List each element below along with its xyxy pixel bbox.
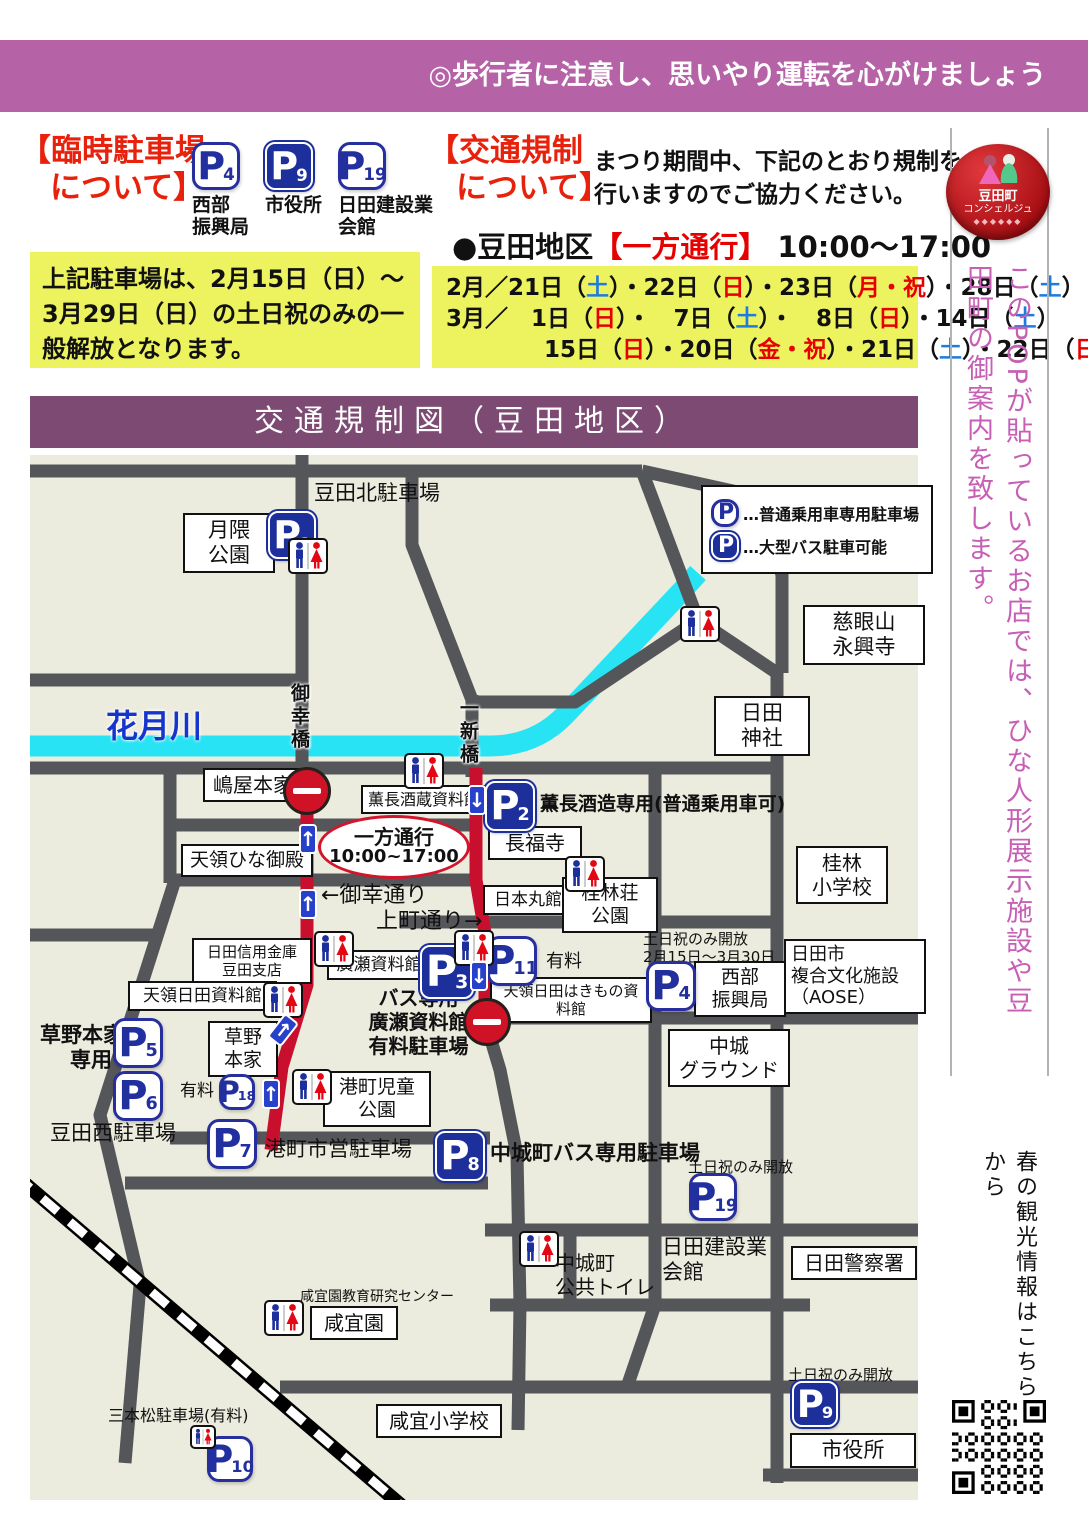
traffic-regulation-map: P…普通乗用車専用駐車場P…大型バス駐車可能 一方通行 10:00~17:00 … — [30, 455, 918, 1500]
map-label-nihonmarukan: 日本丸館 — [483, 885, 573, 915]
subtitle-segment: ●豆田地区 — [452, 230, 593, 264]
flyer-page: { "colors":{"banner_purple":"#b562a6","t… — [0, 0, 1088, 1536]
badge-decoration: ◆◆◆◆◆◆ — [946, 216, 1050, 227]
oneway-bubble-line1: 一方通行 — [354, 827, 434, 848]
bridge-label: 御幸橋 — [286, 683, 313, 752]
toilet-icon — [314, 931, 354, 967]
parking-icon-p19: P19 — [689, 1173, 737, 1221]
map-label-kusano-honke: 草野本家 — [208, 1021, 278, 1077]
toilet-icon — [264, 1300, 304, 1336]
legend-text: …大型バス駐車可能 — [743, 534, 887, 558]
regulation-title-line1: 【交通規制 — [428, 136, 583, 167]
temp-parking-title-line1: 【臨時駐車場 — [20, 136, 206, 167]
map-label-tenryo-hita-museum: 天領日田資料館 — [128, 981, 277, 1011]
temp-parking-lots: P4西部振興局P9市役所P19日田建設業会館 — [192, 142, 433, 239]
map-label-kagetsu-river: 花月川 — [106, 707, 202, 745]
map-label-kangi-elementary: 咸宜小学校 — [376, 1404, 502, 1438]
toilet-icon — [565, 856, 605, 892]
map-label-tsukikuma-park: 月隈公園 — [183, 513, 275, 573]
date-segment: 土 — [1039, 275, 1062, 301]
regulation-title-line2: について】 — [456, 173, 610, 204]
map-label-city-hall: 市役所 — [790, 1433, 916, 1468]
sidebar-line-right — [1047, 128, 1049, 1076]
toilet-icon — [680, 606, 720, 642]
safety-banner: ◎歩行者に注意し、思いやり運転を心がけましょう — [0, 40, 1088, 112]
bridge-label: 一新橋 — [455, 698, 482, 767]
qr-code — [952, 1400, 1046, 1494]
oneway-bubble: 一方通行 10:00~17:00 — [318, 815, 470, 879]
parking-icon-p18: P18 — [219, 1074, 255, 1110]
temp-parking-lot-p19: P19日田建設業会館 — [338, 142, 433, 239]
map-label-minatomachi-city-lot: 港町市営駐車場 — [265, 1137, 412, 1162]
date-segment: ） — [1062, 275, 1085, 301]
parking-icon-p2: P2 — [485, 781, 535, 831]
date-segment: ）・ 7日（ — [616, 306, 736, 332]
no-entry-sign — [463, 998, 511, 1046]
date-segment: 日 — [622, 337, 645, 363]
date-segment: ）・23日（ — [745, 275, 858, 301]
map-label-hita-shinkin: 日田信用金庫豆田支店 — [192, 938, 312, 984]
legend-text: …普通乗用車専用駐車場 — [743, 501, 919, 525]
regulation-description: まつり期間中、下記のとおり規制を 行いますのでご協力ください。 — [594, 146, 962, 212]
legend-row: P…大型バス駐車可能 — [711, 532, 923, 560]
map-label-kensetsu-kaikan: 日田建設業会館 — [662, 1235, 767, 1285]
map-label-aose: 日田市複合文化施設（AOSE） — [784, 939, 926, 1014]
toilet-icon — [519, 1231, 559, 1267]
date-segment: 土 — [586, 275, 609, 301]
parking-icon-p11: P11 — [487, 936, 537, 986]
toilet-icon — [263, 982, 303, 1018]
map-label-mameda-kita-lot: 豆田北駐車場 — [314, 481, 440, 506]
date-segment: 日 — [593, 306, 616, 332]
map-title-bar: 交通規制図（豆田地区） — [30, 396, 918, 448]
map-label-hita-jinja: 日田神社 — [714, 696, 810, 756]
map-label-keirin-elementary: 桂林小学校 — [796, 846, 888, 904]
mamedamachi-concierge-badge: 豆田町 コンシェルジュ ◆◆◆◆◆◆ — [946, 144, 1050, 240]
parking-icon-p7: P7 — [207, 1119, 257, 1169]
sidebar-pop-text: このPOPが貼っているお店では、ひな人形展示施設や豆田町の御案内を致します。 — [958, 264, 1036, 1034]
parking-icon-p4: P4 — [192, 142, 240, 190]
date-segment: 日 — [722, 275, 745, 301]
map-label-seibu-shinkokyoku: 西部振興局 — [694, 961, 786, 1017]
temp-parking-lot-label: 西部振興局 — [192, 195, 249, 239]
no-entry-sign — [283, 767, 331, 815]
temp-parking-lot-label: 日田建設業会館 — [338, 195, 433, 239]
parking-note-text: 上記駐車場は、2月15日（日）～3月29日（日）の土日祝のみの一般解放となります… — [30, 252, 420, 377]
map-label-nakajo-public-toilet: 中城町公共トイレ — [555, 1251, 655, 1299]
map-label-chofukuji: 長福寺 — [488, 826, 582, 860]
date-segment: 2月／21日（ — [446, 275, 586, 301]
qr-caption: 春の観光情報はこちらから — [976, 1150, 1040, 1410]
oneway-arrow-up: ↑ — [262, 1079, 280, 1109]
map-label-kangien-center: 咸宜園教育研究センター — [300, 1289, 454, 1306]
map-label-miyuki-street: ←御幸通り — [321, 883, 427, 909]
sidebar-line-left — [950, 128, 952, 1076]
toilet-icon — [288, 538, 328, 574]
oneway-bubble-line2: 10:00~17:00 — [329, 848, 459, 867]
regulation-dates-box: 2月／21日（土）・22日（日）・23日（月・祝）・28日（土）3月／ 1日（日… — [432, 266, 918, 368]
oneway-arrow-up: ↑ — [299, 824, 317, 854]
date-segment: ）・21日（ — [827, 337, 940, 363]
map-label-minatomachi-kids-park: 港町児童公園 — [323, 1071, 431, 1127]
temp-parking-title-line2: について】 — [50, 173, 204, 204]
parking-icon-p8: P8 — [435, 1131, 485, 1181]
map-label-hita-police: 日田警察署 — [791, 1246, 917, 1280]
badge-text-line1: 豆田町 — [946, 190, 1050, 203]
date-segment: 日 — [878, 306, 901, 332]
date-segment: 金・祝 — [758, 337, 827, 363]
parking-icon-p: P — [711, 499, 739, 527]
parking-icon-p19: P19 — [338, 142, 386, 190]
toilet-icon — [190, 1425, 216, 1449]
regulation-date-line: 3月／ 1日（日）・ 7日（土）・ 8日（日）・14日（土） — [432, 304, 918, 335]
map-label-jigenzan-eikoji: 慈眼山永興寺 — [803, 605, 925, 665]
hina-dolls-icon — [968, 152, 1028, 186]
date-segment: 日 — [1075, 337, 1088, 363]
map-label-kangien: 咸宜園 — [310, 1306, 398, 1340]
map-label-nakajo-ground: 中城グラウンド — [668, 1029, 790, 1087]
map-label-kuncho-parking-note: 薫長酒造専用(普通乗用車可) — [540, 793, 785, 816]
subtitle-segment: 【一方通行】 — [593, 230, 767, 264]
oneway-arrow-up: ↑ — [299, 889, 317, 919]
date-segment: 15日（ — [544, 337, 622, 363]
toilet-icon — [292, 1069, 332, 1105]
map-label-mameda-nishi-lot: 豆田西駐車場 — [50, 1121, 176, 1146]
regulation-date-line: 2月／21日（土）・22日（日）・23日（月・祝）・28日（土） — [432, 273, 918, 304]
parking-icon-p6: P6 — [113, 1071, 163, 1121]
map-label-p11-fee: 有料 — [546, 951, 582, 973]
parking-icon-p4: P4 — [646, 961, 696, 1011]
map-label-sanbonmatsu-lot: 三本松駐車場(有料) — [108, 1406, 249, 1425]
badge-text-line2: コンシェルジュ — [946, 203, 1050, 216]
temp-parking-lot-p4: P4西部振興局 — [192, 142, 249, 239]
oneway-arrow-down: ↓ — [470, 961, 488, 991]
map-label-p18-fee: 有料 — [180, 1081, 214, 1101]
oneway-arrow-down: ↓ — [468, 785, 486, 815]
regulation-date-line: 15日（日）・20日（金・祝）・21日（土）・22日（日） — [432, 335, 918, 366]
toilet-icon — [404, 753, 444, 789]
map-legend: P…普通乗用車専用駐車場P…大型バス駐車可能 — [701, 485, 933, 574]
parking-icon-p9: P9 — [265, 142, 313, 190]
temp-parking-lot-label: 市役所 — [265, 195, 322, 217]
parking-icon-p5: P5 — [113, 1018, 163, 1068]
regulation-desc-line2: 行いますのでご協力ください。 — [594, 179, 962, 212]
date-segment: 月・祝 — [857, 275, 926, 301]
oneway-subtitle: ●豆田地区【一方通行】 10:00～17:00 — [452, 224, 991, 266]
date-segment: ）・22日（ — [609, 275, 722, 301]
subtitle-segment: 10:00～17:00 — [767, 230, 991, 264]
date-segment: 3月／ 1日（ — [446, 306, 593, 332]
map-label-nakajo-bus-lot: 中城町バス専用駐車場 — [490, 1141, 700, 1166]
parking-icon-p9: P9 — [792, 1381, 838, 1427]
date-segment: ）・ 8日（ — [759, 306, 879, 332]
parking-note-box: 上記駐車場は、2月15日（日）～3月29日（日）の土日祝のみの一般解放となります… — [30, 252, 420, 368]
date-segment: ）・20日（ — [645, 337, 758, 363]
map-label-kusano-senyo: 草野本家専用 — [40, 1023, 112, 1073]
regulation-desc-line1: まつり期間中、下記のとおり規制を — [594, 146, 962, 179]
temp-parking-lot-p9: P9市役所 — [265, 142, 322, 239]
legend-row: P…普通乗用車専用駐車場 — [711, 499, 923, 527]
date-segment: 土 — [736, 306, 759, 332]
map-label-tenryo-hina-goten: 天領ひな御殿 — [181, 844, 313, 877]
parking-icon-p: P — [711, 532, 739, 560]
